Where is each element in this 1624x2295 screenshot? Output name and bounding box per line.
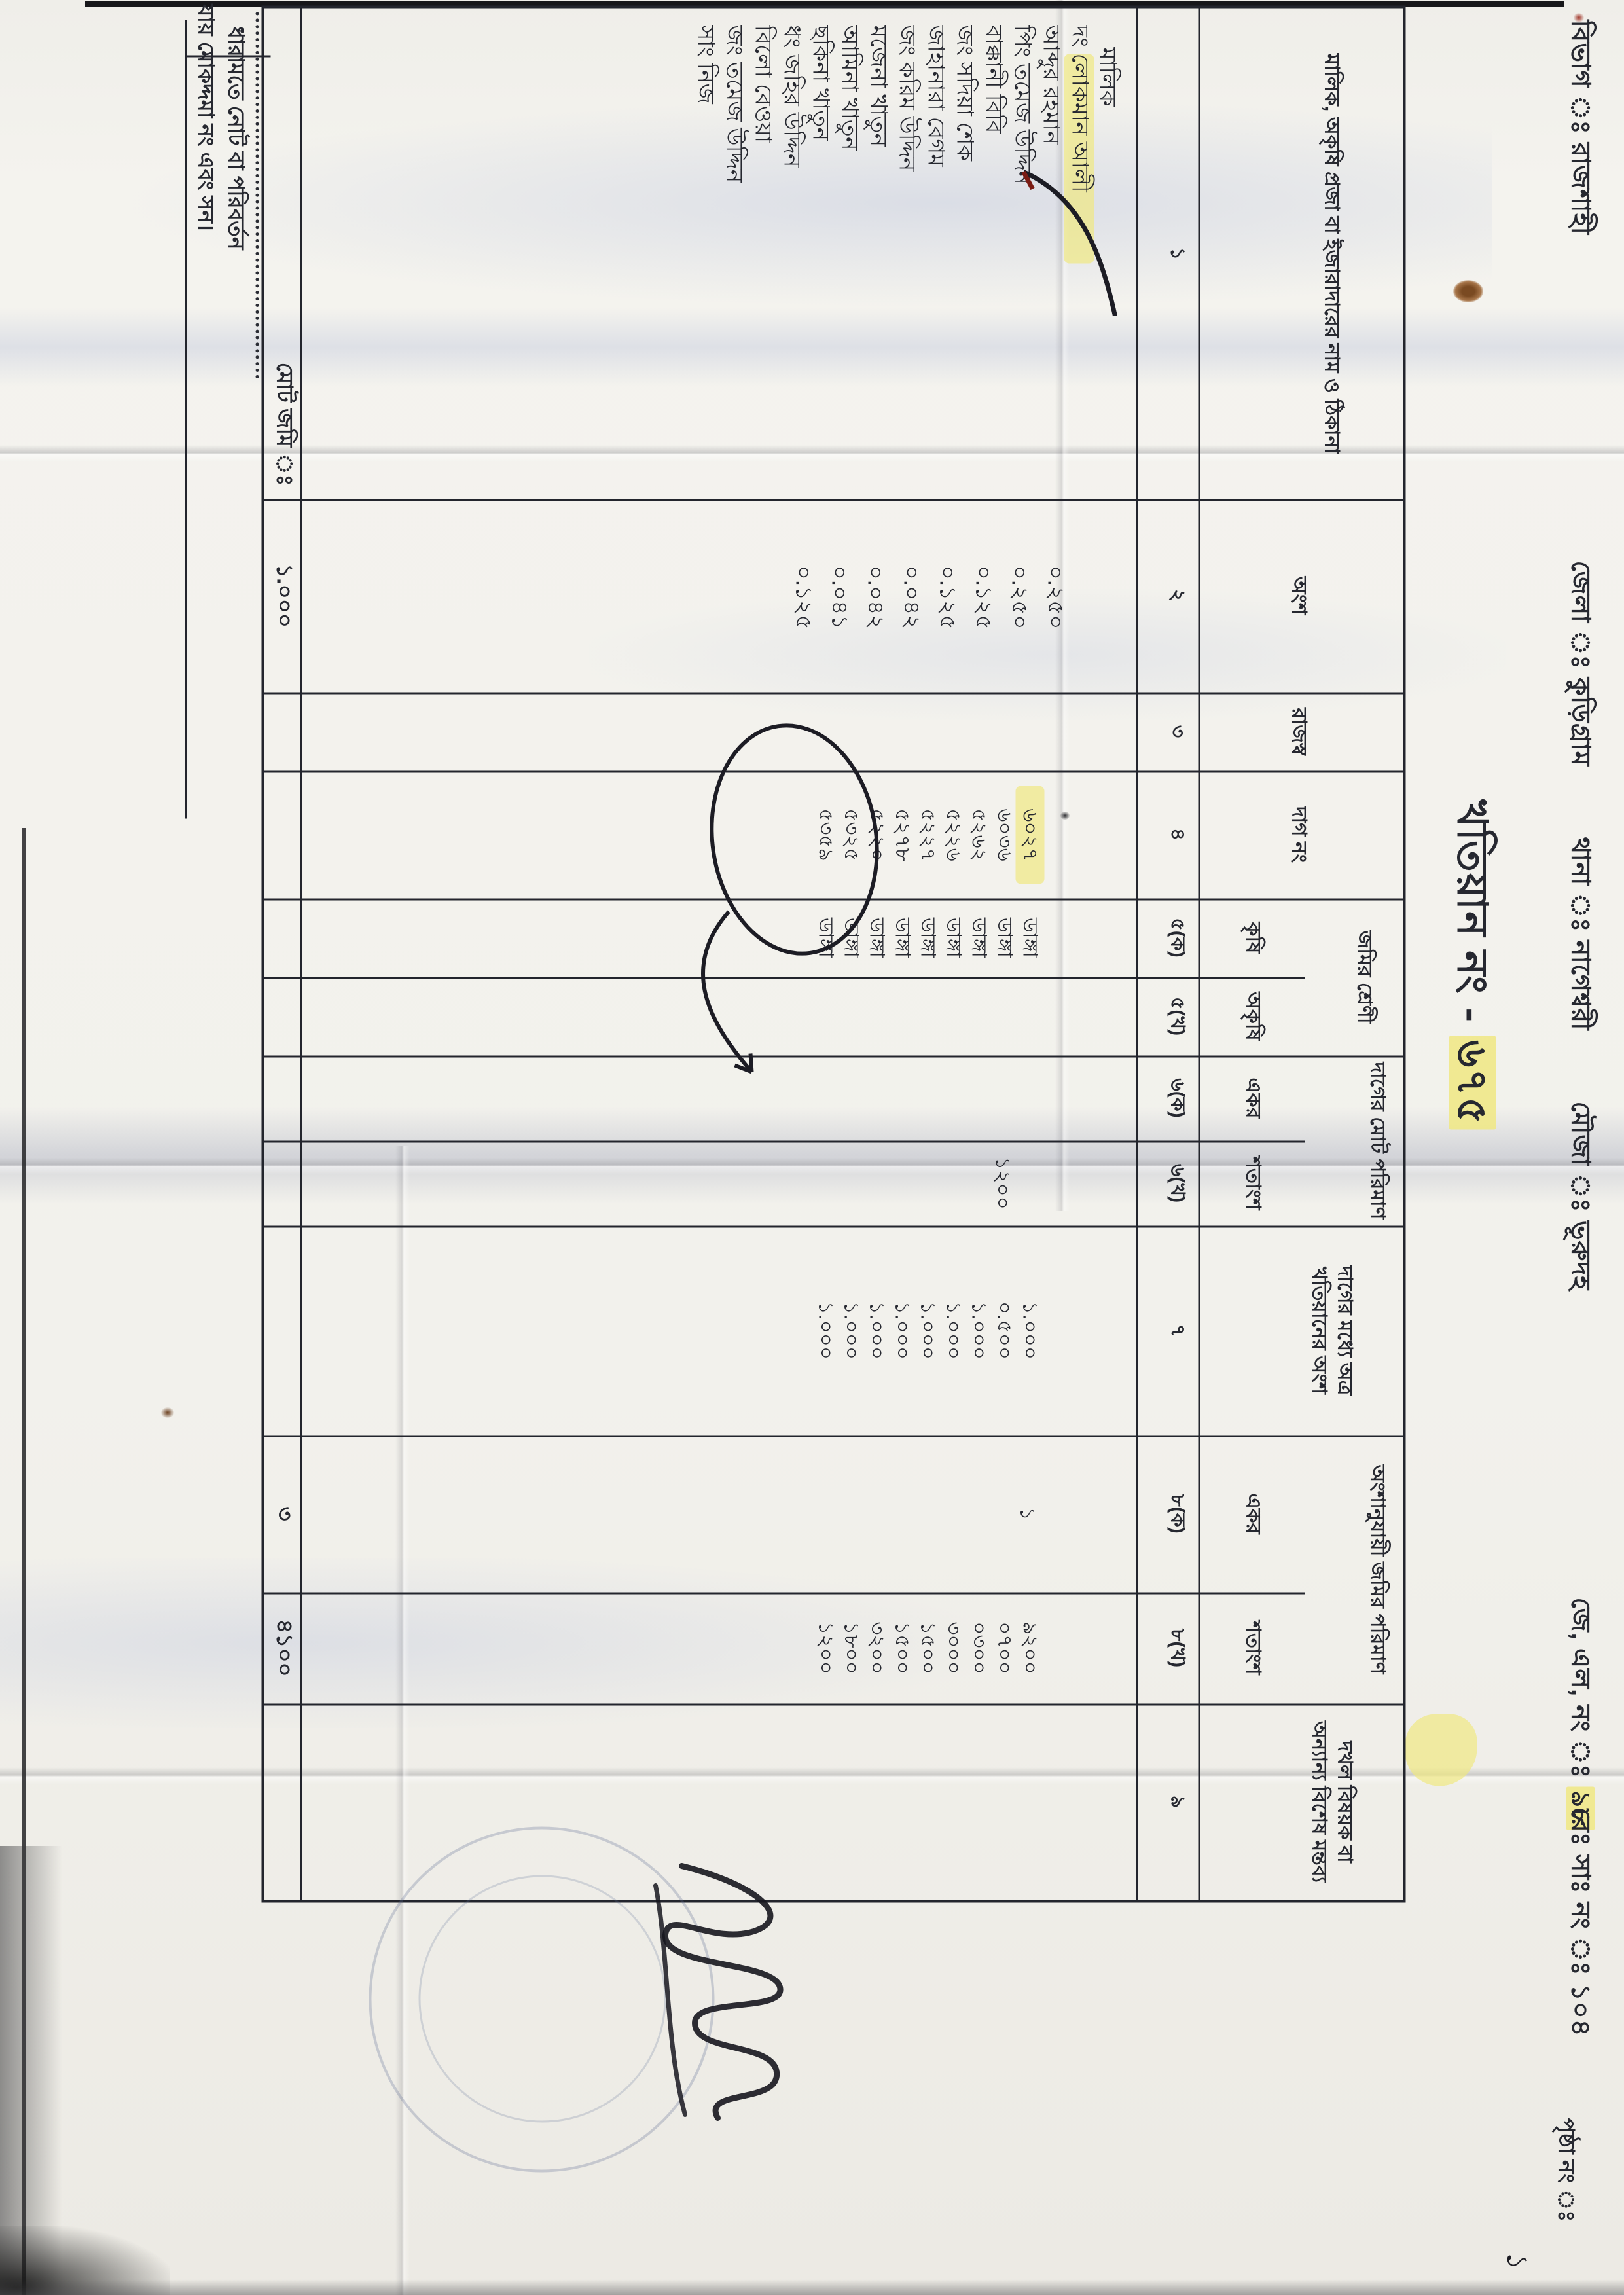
owner-name: সাং নিজ bbox=[689, 25, 718, 490]
mouza-label: মৌজা ঃ bbox=[1566, 1101, 1595, 1212]
col-number: ১ bbox=[1166, 214, 1189, 293]
khatian-share-value: ১.০০০ bbox=[863, 1228, 888, 1432]
col9-header: দখল বিষয়ক বা অন্যান্য বিশেষ মন্তব্য bbox=[1307, 1716, 1358, 1887]
shotangsho-value: ৯২০০ bbox=[1016, 1595, 1041, 1701]
col3-header: রাজস্ব bbox=[1286, 692, 1311, 770]
signature-scribble bbox=[642, 1846, 852, 2134]
mouza-value: ভূরুদহ bbox=[1566, 1220, 1595, 1290]
khatian-number: ৬৭৫ bbox=[1449, 1036, 1496, 1129]
khatian-share-value: ১.০০০ bbox=[812, 1228, 837, 1432]
share-value: ০.১২৫ bbox=[780, 505, 816, 689]
re-sa-value: ১০৪ bbox=[1566, 1983, 1595, 2036]
col6-group-header: দাগের মোট পরিমাণ bbox=[1364, 1055, 1390, 1225]
acre-value: ১ bbox=[1015, 1435, 1039, 1592]
col-number: ৫(খ) bbox=[1166, 977, 1189, 1055]
footer-rule bbox=[185, 20, 187, 818]
khatian-share-value: ১.০০০ bbox=[837, 1228, 863, 1432]
share-value: ০.০৪২ bbox=[852, 505, 888, 689]
owner-name: জাহানারা বেগম bbox=[920, 25, 948, 490]
column-rule bbox=[264, 692, 1403, 694]
khatian-share-value: ১.০০০ bbox=[965, 1228, 990, 1432]
total-land-label: মোট জমি ঃ bbox=[271, 257, 297, 486]
shotangsho-value: ১৫০০ bbox=[914, 1595, 939, 1701]
division-label: বিভাগ ঃ bbox=[1566, 20, 1595, 134]
share-value: ০.১২৫ bbox=[924, 505, 960, 689]
footer-note-line2: যায় মোকদ্দমা নং এবং সন। bbox=[193, 4, 218, 230]
khatian-share-value: ১.০০০ bbox=[1016, 1228, 1041, 1432]
land-class: ডাঙ্গা bbox=[1016, 901, 1041, 974]
col8a-header: একর bbox=[1240, 1435, 1265, 1592]
col-number: ৮(ক) bbox=[1166, 1474, 1189, 1553]
col-number: ২ bbox=[1166, 556, 1189, 634]
number-row-rule bbox=[1136, 8, 1138, 1900]
dag-number: ৬০২৭ bbox=[1016, 774, 1041, 895]
share-value: ০.০৪২ bbox=[888, 505, 924, 689]
dotted-rule bbox=[255, 12, 259, 378]
share-total: ১.০০০ bbox=[271, 499, 297, 692]
jl-label: জে, এল, নং ঃ bbox=[1566, 1597, 1595, 1779]
col-number: ৩ bbox=[1166, 692, 1189, 770]
plot-total-amount: ১২০০ bbox=[990, 1140, 1014, 1225]
land-class: ডাঙ্গা bbox=[965, 901, 990, 974]
col8b-header: শতাংশ bbox=[1240, 1592, 1265, 1703]
division-field: বিভাগ ঃ রাজশাহী bbox=[1565, 20, 1595, 234]
col1-header: মালিক, অকৃষি প্রজা বা ইজারাদারের নাম ও ঠ… bbox=[1318, 34, 1344, 473]
thana-field: থানা ঃ নাগেশ্বরী bbox=[1565, 837, 1595, 1030]
col-number: ৬(ক) bbox=[1166, 1058, 1189, 1137]
owner-column-heading: মালিক bbox=[1094, 47, 1120, 106]
thana-value: নাগেশ্বরী bbox=[1566, 940, 1595, 1030]
owner-name: আমিনা খাতুন bbox=[833, 25, 862, 490]
dag-number: ৫২২৬ bbox=[939, 774, 965, 895]
district-label: জেলা ঃ bbox=[1566, 560, 1595, 669]
jl-number-field: জে, এল, নং ঃ ৯৮ bbox=[1565, 1597, 1595, 1830]
col5a-header: কৃষি bbox=[1240, 898, 1265, 977]
shotangsho-value: ১২০০ bbox=[812, 1595, 837, 1701]
khatian-share-list: ১.০০০০.৫০০১.০০০১.০০০১.০০০১.০০০১.০০০১.০০০… bbox=[812, 1228, 1041, 1432]
land-class: ডাঙ্গা bbox=[990, 901, 1016, 974]
shotangsho-value: ১৮০০ bbox=[837, 1595, 863, 1701]
office-seal-inner-ring bbox=[418, 1875, 666, 2122]
re-sa-label: রেঃ সাঃ নং ঃ bbox=[1566, 1807, 1595, 1976]
owner-name: জং তমেজ উদ্দিন bbox=[718, 25, 747, 490]
owner-name: জং করিম উদ্দিন bbox=[891, 25, 920, 490]
share-value: ০.০৪১ bbox=[816, 505, 852, 689]
khatian-share-value: ১.০০০ bbox=[888, 1228, 914, 1432]
dag-number: ৬০৩৬ bbox=[990, 774, 1016, 895]
shotangsho-value: ৩২০০ bbox=[863, 1595, 888, 1701]
header-rule bbox=[1198, 8, 1200, 1900]
shotangsho-value: ১৫০০ bbox=[888, 1595, 914, 1701]
shotangsho-total: ৪১০০ bbox=[271, 1592, 297, 1703]
shotangsho-list: ৯২০০০৭০০০৩০০৩০০০১৫০০১৫০০৩২০০১৮০০১২০০ bbox=[812, 1595, 1041, 1701]
subcolumn-rule bbox=[264, 1592, 1305, 1594]
column-rule bbox=[264, 1703, 1403, 1705]
khatian-table: মালিক, অকৃষি প্রজা বা ইজারাদারের নাম ও ঠ… bbox=[261, 5, 1405, 1902]
pen-hook-mark bbox=[1017, 158, 1121, 329]
division-value: রাজশাহী bbox=[1566, 142, 1595, 234]
khatian-document: বিভাগ ঃ রাজশাহী জেলা ঃ কুড়িগ্রাম থানা ঃ… bbox=[0, 0, 1624, 2295]
share-list: ০.২৫০০.২৫০০.১২৫০.১২৫০.০৪২০.০৪২০.০৪১০.১২৫ bbox=[780, 505, 1068, 689]
col6a-header: একর bbox=[1240, 1055, 1265, 1140]
page-number-label: পৃষ্ঠা নং ঃ bbox=[1553, 2118, 1578, 2222]
col5-group-header: জমির শ্রেণী bbox=[1351, 898, 1377, 1055]
owner-name: বাক্কানী বিবি bbox=[977, 25, 1006, 490]
col-number: ৪ bbox=[1166, 795, 1189, 873]
pen-circle-annotation bbox=[591, 715, 918, 1173]
col-number: ৫(ক) bbox=[1166, 898, 1189, 977]
khatian-share-value: ০.৫০০ bbox=[990, 1228, 1016, 1432]
scanned-khatian-document: বিভাগ ঃ রাজশাহী জেলা ঃ কুড়িগ্রাম থানা ঃ… bbox=[0, 0, 1624, 2295]
totals-rule bbox=[300, 8, 302, 1900]
col5b-header: অকৃষি bbox=[1240, 977, 1265, 1055]
page-number-text: পৃষ্ঠা নং ঃ bbox=[1553, 2118, 1578, 2222]
district-field: জেলা ঃ কুড়িগ্রাম bbox=[1565, 560, 1595, 766]
share-value: ০.২৫০ bbox=[1032, 505, 1068, 689]
page-title: খতিয়ান নং - ৬৭৫ bbox=[1447, 0, 1496, 1928]
col-number: ৮(খ) bbox=[1166, 1608, 1189, 1687]
owner-name: বিলো বেওয়া bbox=[747, 25, 776, 490]
col-number: ৬(খ) bbox=[1166, 1144, 1189, 1222]
khatian-title-prefix: খতিয়ান নং - bbox=[1449, 799, 1496, 1036]
col6b-header: শতাংশ bbox=[1240, 1140, 1265, 1225]
footer-rule-cap bbox=[187, 55, 270, 57]
column-rule bbox=[264, 1225, 1403, 1227]
col4-header: দাগ নং bbox=[1286, 770, 1311, 898]
mouza-field: মৌজা ঃ ভূরুদহ bbox=[1565, 1101, 1595, 1290]
col8-group-header: অংশানুযায়ী জমির পরিমাণ bbox=[1364, 1435, 1390, 1703]
owner-name: মজেনা খাতুন bbox=[862, 25, 891, 490]
column-rule bbox=[264, 1435, 1403, 1437]
shotangsho-value: ০৩০০ bbox=[965, 1595, 990, 1701]
share-value: ০.১২৫ bbox=[960, 505, 996, 689]
col7-header: দাগের মধ্যে অত্র খতিয়ানের অংশ bbox=[1307, 1238, 1358, 1422]
footer-note-line1: ধারামতে নোট বা পরিবর্তন bbox=[223, 26, 248, 249]
re-sa-number-field: রেঃ সাঃ নং ঃ ১০৪ bbox=[1565, 1807, 1595, 2036]
shotangsho-value: ০৭০০ bbox=[990, 1595, 1016, 1701]
land-class: ডাঙ্গা bbox=[939, 901, 965, 974]
col2-header: অংশ bbox=[1286, 499, 1311, 692]
owner-name: জং সদিয়া শেক bbox=[948, 25, 977, 490]
thana-label: থানা ঃ bbox=[1566, 837, 1595, 932]
acre-total: ৩ bbox=[271, 1435, 297, 1592]
col-number: ৭ bbox=[1166, 1291, 1189, 1369]
share-value: ০.২৫০ bbox=[996, 505, 1032, 689]
shotangsho-value: ৩০০০ bbox=[939, 1595, 965, 1701]
owner-name: ছকিনা খাতুন bbox=[804, 25, 833, 490]
column-rule bbox=[264, 499, 1403, 501]
khatian-share-value: ১.০০০ bbox=[939, 1228, 965, 1432]
khatian-share-value: ১.০০০ bbox=[914, 1228, 939, 1432]
dag-number: ৫২৬২ bbox=[965, 774, 990, 895]
col-number: ৯ bbox=[1166, 1762, 1189, 1841]
district-value: কুড়িগ্রাম bbox=[1566, 677, 1595, 766]
handwritten-page-number: ১ bbox=[1498, 2248, 1534, 2274]
owner-name: ধং জহির উদ্দিন bbox=[776, 25, 804, 490]
